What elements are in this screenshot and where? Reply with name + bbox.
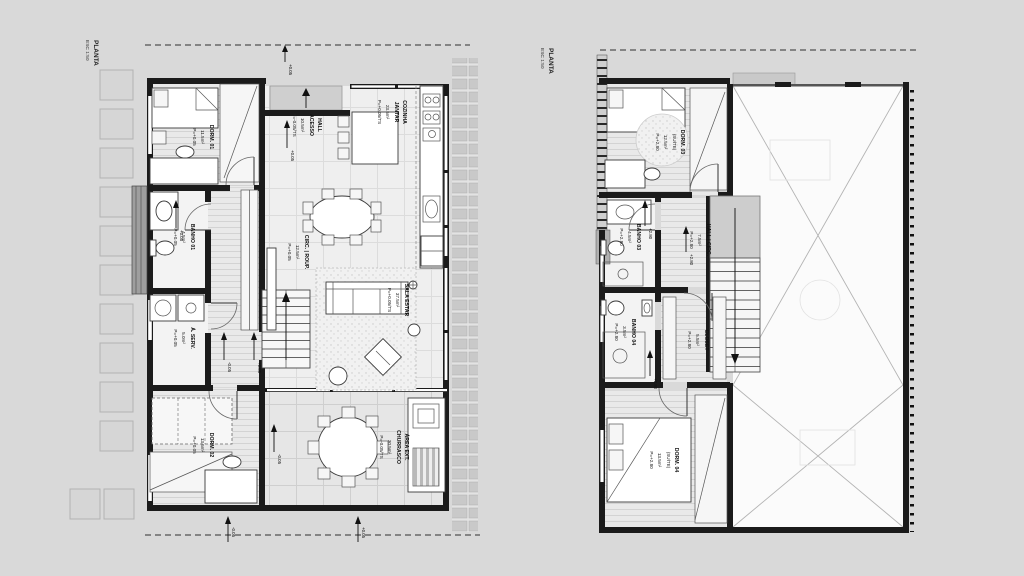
- svg-text:11.5m²: 11.5m²: [200, 130, 205, 144]
- plan2-title-text: PLANTA: [547, 48, 554, 74]
- svg-text:P=-0.05/TS: P=-0.05/TS: [292, 113, 297, 136]
- plan1-title-text: PLANTA: [92, 40, 99, 66]
- svg-text:JANTAR: JANTAR: [393, 102, 399, 123]
- svg-text:COZINHA: COZINHA: [401, 100, 407, 124]
- svg-text:+0.05: +0.05: [290, 150, 295, 162]
- svg-text:DORM. 04: DORM. 04: [673, 448, 679, 473]
- svg-text:SALA ESTAR: SALA ESTAR: [403, 284, 409, 317]
- svg-text:P=+0.05: P=+0.05: [192, 128, 197, 146]
- svg-text:13.5m²: 13.5m²: [200, 438, 205, 453]
- svg-text:10.5m²: 10.5m²: [300, 118, 305, 133]
- floorplan-drawing: PLANTA ESC 1:50: [0, 0, 1024, 576]
- svg-text:P=+0.05: P=+0.05: [287, 243, 292, 261]
- svg-text:DORM. 02: DORM. 02: [208, 433, 214, 458]
- svg-text:5.0m²: 5.0m²: [181, 332, 186, 344]
- svg-text:P=+0.05/TS: P=+0.05/TS: [387, 288, 392, 313]
- svg-text:DORM. 03: DORM. 03: [679, 130, 685, 155]
- svg-text:HALL | CIRC.: HALL | CIRC.: [705, 224, 711, 257]
- left-planter-squares: [70, 70, 134, 519]
- svg-text:5.5m²: 5.5m²: [695, 334, 700, 346]
- svg-text:3.5m²: 3.5m²: [622, 326, 627, 338]
- svg-text:+0.05: +0.05: [179, 230, 184, 242]
- marker-bottom-right: +0.05: [355, 516, 366, 542]
- floorplan-sheet: PLANTA ESC 1:50: [0, 0, 1024, 576]
- svg-text:37.5m²: 37.5m²: [395, 293, 400, 308]
- svg-text:-0.05: -0.05: [227, 362, 232, 373]
- svg-text:CIRC. | ROUP.: CIRC. | ROUP.: [303, 235, 309, 270]
- svg-text:P=+2.80: P=+2.80: [619, 228, 624, 246]
- svg-text:12.5m²: 12.5m²: [663, 135, 668, 150]
- svg-text:ACESSO: ACESSO: [308, 114, 314, 136]
- svg-text:HALL: HALL: [316, 118, 322, 133]
- marker-roof: +0.05: [282, 45, 293, 76]
- svg-text:P=+2.80: P=+2.80: [687, 331, 692, 349]
- svg-text:-0.05: -0.05: [277, 454, 282, 465]
- svg-text:P=+2.80: P=+2.80: [614, 323, 619, 341]
- entry-step: [270, 86, 342, 110]
- deck-strip: [452, 58, 478, 532]
- plan2-scale-text: ESC 1:50: [539, 48, 545, 69]
- svg-text:P=+2.80: P=+2.80: [655, 133, 660, 151]
- svg-text:P=+0.05: P=+0.05: [173, 329, 178, 347]
- plan2-title: PLANTA ESC 1:50: [539, 48, 554, 74]
- svg-text:+2.80: +2.80: [653, 378, 658, 390]
- svg-text:+2.80: +2.80: [648, 228, 653, 240]
- svg-text:DORM. 01: DORM. 01: [208, 125, 214, 150]
- louver-panel: [132, 186, 147, 294]
- plan1-scale-text: ESC 1:50: [84, 40, 90, 61]
- svg-text:BANHO 03: BANHO 03: [635, 224, 641, 250]
- svg-text:P=+0.05: P=+0.05: [192, 436, 197, 454]
- svg-text:BANHO 04: BANHO 04: [630, 319, 636, 345]
- svg-text:(SUÍTE): (SUÍTE): [672, 134, 678, 151]
- svg-text:CHURRASCO: CHURRASCO: [395, 430, 401, 464]
- batten-ticks-right: [910, 86, 915, 532]
- svg-text:P=+2.80: P=+2.80: [689, 231, 694, 249]
- svg-text:BANHO 01: BANHO 01: [189, 224, 195, 250]
- svg-text:P=+0.05/TS: P=+0.05/TS: [377, 100, 382, 125]
- plan2: PLANTA ESC 1:50: [539, 48, 916, 533]
- svg-text:4.5m²: 4.5m²: [627, 231, 632, 243]
- svg-text:13.5m²: 13.5m²: [657, 453, 662, 468]
- svg-text:(SUÍTE): (SUÍTE): [666, 452, 672, 469]
- svg-text:+0.05: +0.05: [288, 64, 293, 76]
- svg-text:7.5m²: 7.5m²: [697, 234, 702, 246]
- svg-text:12.5m²: 12.5m²: [295, 245, 300, 260]
- svg-text:P=+2.80: P=+2.80: [649, 451, 654, 469]
- svg-text:+0.05: +0.05: [361, 527, 366, 539]
- svg-text:30.5m²: 30.5m²: [387, 440, 392, 455]
- svg-text:ÁREA EXT.: ÁREA EXT.: [403, 434, 410, 461]
- marker-bottom-left: -0.05: [225, 516, 236, 542]
- svg-text:+0.05: +0.05: [257, 362, 262, 374]
- plan1-title: PLANTA ESC 1:50: [84, 40, 99, 66]
- svg-text:CLOSET: CLOSET: [703, 329, 709, 351]
- roupeiro-closet: [241, 190, 258, 330]
- svg-text:P=-0.05/TS: P=-0.05/TS: [379, 435, 384, 458]
- svg-text:-0.05: -0.05: [231, 527, 236, 538]
- svg-text:Á. SERV.: Á. SERV.: [189, 327, 196, 349]
- svg-text:23.5m²: 23.5m²: [385, 105, 390, 120]
- svg-text:+2.80: +2.80: [689, 254, 694, 266]
- plan1: PLANTA ESC 1:50: [70, 40, 480, 542]
- svg-text:P=+0.05: P=+0.05: [173, 228, 178, 246]
